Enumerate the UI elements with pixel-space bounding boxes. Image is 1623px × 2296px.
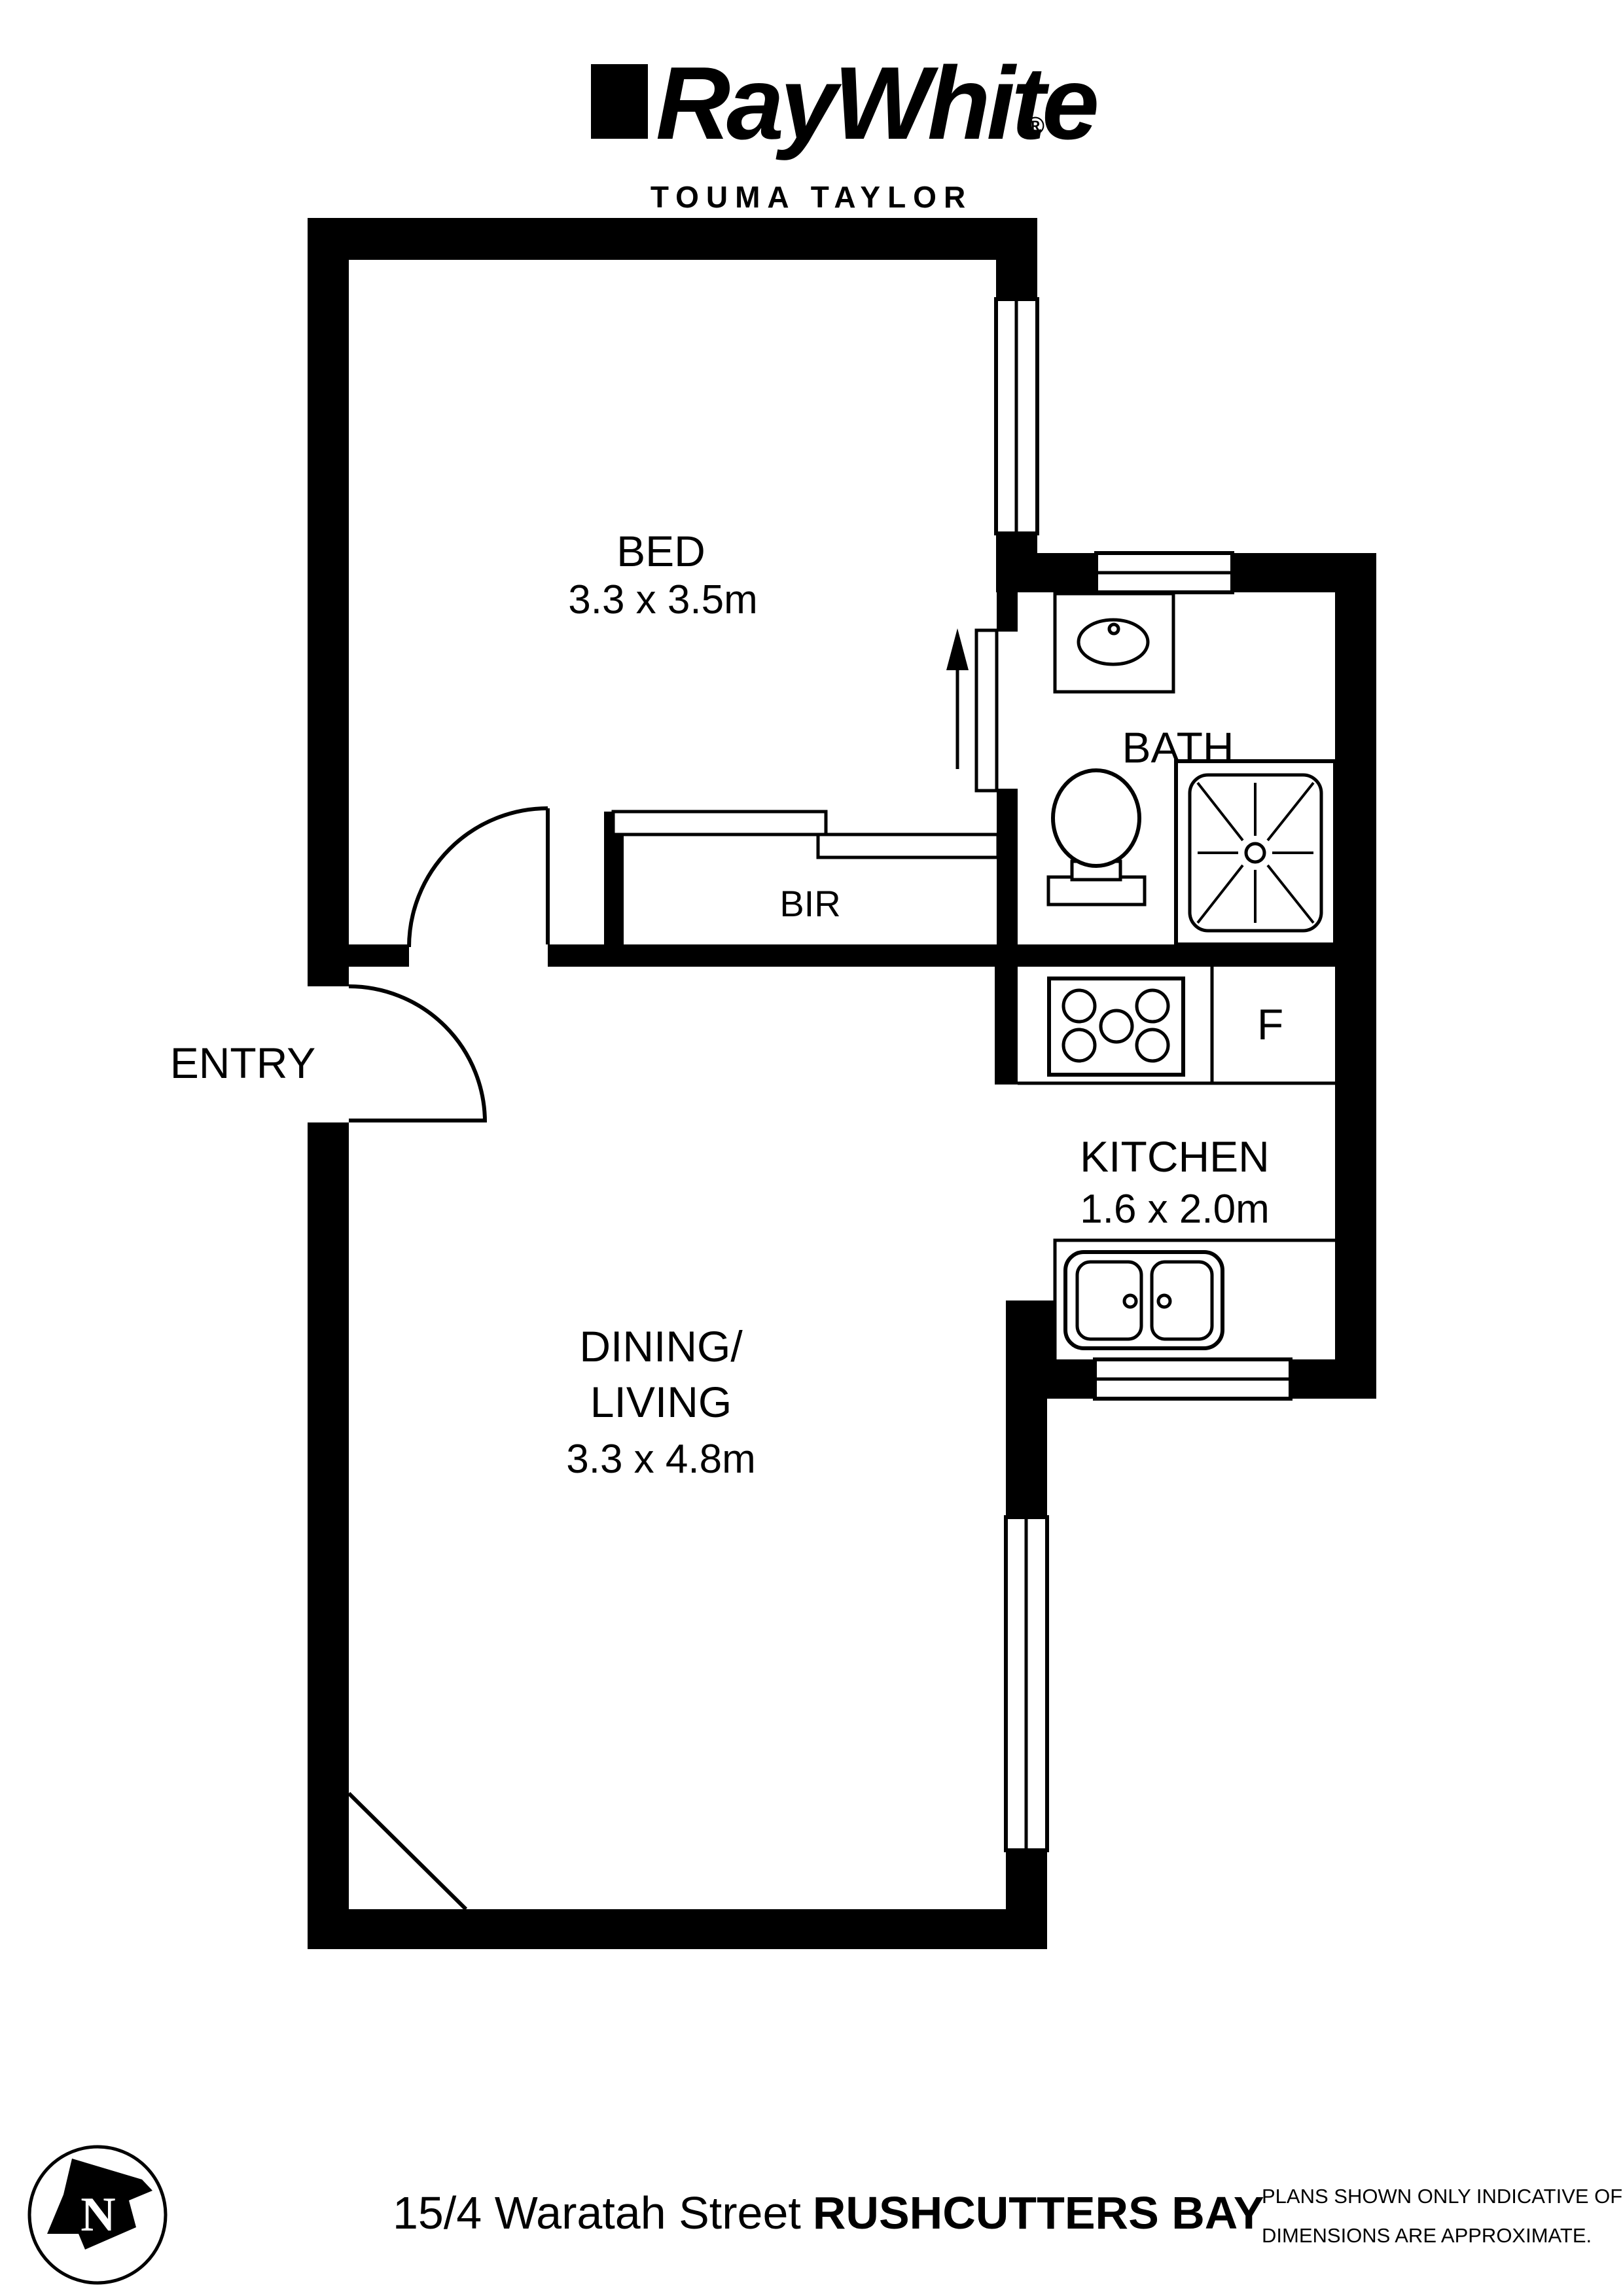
doors [349,628,998,1122]
wall-bed-right-top [996,260,1037,299]
bed-label: BED [616,527,705,575]
north-compass-icon: N [29,2147,166,2283]
bath-window [1096,553,1232,592]
bedroom-door-swing-arc [409,808,548,947]
wall-bir-kitchen-band [548,944,1335,967]
bir-label: BIR [779,883,840,924]
wall-kitchen-bottom-right [1291,1359,1376,1399]
brand-header: RayWhite ® TOUMA TAYLOR [591,46,1097,214]
floorplan: BED 3.3 x 3.5m BATH BIR ENTRY F KITCHEN … [170,218,1376,1949]
cooktop [1049,978,1183,1075]
fridge-label: F [1257,1000,1283,1049]
wall-bath-top-right [1232,553,1335,592]
vanity [1055,594,1173,692]
wall-left-upper [308,218,349,986]
shower [1176,761,1335,944]
north-letter: N [80,2188,115,2242]
floorplan-canvas: RayWhite ® TOUMA TAYLOR [0,0,1623,2296]
bath-slider-arrow-head-icon [946,628,969,670]
entry-door [349,986,485,1122]
wall-top [308,218,1037,260]
bed-window [996,299,1037,533]
bath-slider-panel [976,630,997,791]
entry-door-swing-arc [349,986,485,1122]
kitchen-label: KITCHEN [1080,1132,1270,1181]
dining-label-1: DINING/ [579,1322,743,1371]
cooktop-burner [1063,990,1095,1022]
bir-slider-panel-rear [613,812,826,834]
wall-bed-bottom-stub [349,944,409,967]
wall-dining-right-upper [1006,1399,1047,1517]
disclaimer-line-2: DIMENSIONS ARE APPROXIMATE. [1262,2224,1592,2247]
cooktop-burner [1101,1011,1132,1042]
cooktop-burner [1137,1030,1168,1061]
disclaimer-line-1: PLANS SHOWN ONLY INDICATIVE OF LAYOUT. [1262,2185,1623,2208]
registered-mark: ® [1026,113,1044,140]
wall-bath-top-left [1016,553,1096,592]
kitchen-dims: 1.6 x 2.0m [1080,1187,1269,1232]
bath-sliding-door [946,628,997,791]
wall-dining-right-lower [1006,1850,1047,1949]
dining-label-2: LIVING [590,1378,732,1426]
dining-corner-diagonal [349,1793,466,1909]
dining-window [1006,1517,1047,1850]
wall-bottom [308,1909,1047,1949]
entry-label: ENTRY [170,1039,316,1087]
sink-tap-icon [1124,1295,1136,1307]
cooktop-burner [1063,1030,1095,1061]
sink-tap-icon [1158,1295,1170,1307]
sink-unit [1055,1240,1335,1359]
bath-label: BATH [1122,723,1234,772]
wall-right [1335,553,1376,1399]
bed-dims: 3.3 x 3.5m [568,577,757,622]
bir-sliding-doors [613,812,998,857]
bedroom-door [409,808,548,947]
toilet-bowl [1053,770,1139,866]
shower-drain-icon [1246,844,1264,862]
toilet [1048,770,1145,905]
address-line: 15/4 Waratah StreetRUSHCUTTERS BAY [393,2187,1264,2238]
wall-left-lower [308,1122,349,1949]
wall-kitchen-dining [1006,1300,1055,1399]
dining-dims: 3.3 x 4.8m [566,1437,755,1482]
vanity-tap-icon [1109,624,1118,634]
kitchen-window [1095,1359,1291,1399]
wall-bed-bath-upper [997,592,1018,632]
office-name: TOUMA TAYLOR [651,180,972,214]
bir-slider-panel-front [818,834,998,857]
wall-kitchen-left-return [995,967,1018,1085]
brand-logo-text: RayWhite [656,46,1097,161]
cooktop-burner [1137,990,1168,1022]
footer: N 15/4 Waratah StreetRUSHCUTTERS BAY PLA… [29,2147,1623,2283]
floorplan-page: RayWhite ® TOUMA TAYLOR [0,0,1623,2296]
wall-bed-bath-lower [997,789,1018,944]
wall-kitchen-bottom-left [1055,1359,1095,1399]
address-street: 15/4 Waratah Street [393,2187,801,2238]
raywhite-square-icon [591,64,648,139]
address-suburb: RUSHCUTTERS BAY [813,2187,1264,2238]
